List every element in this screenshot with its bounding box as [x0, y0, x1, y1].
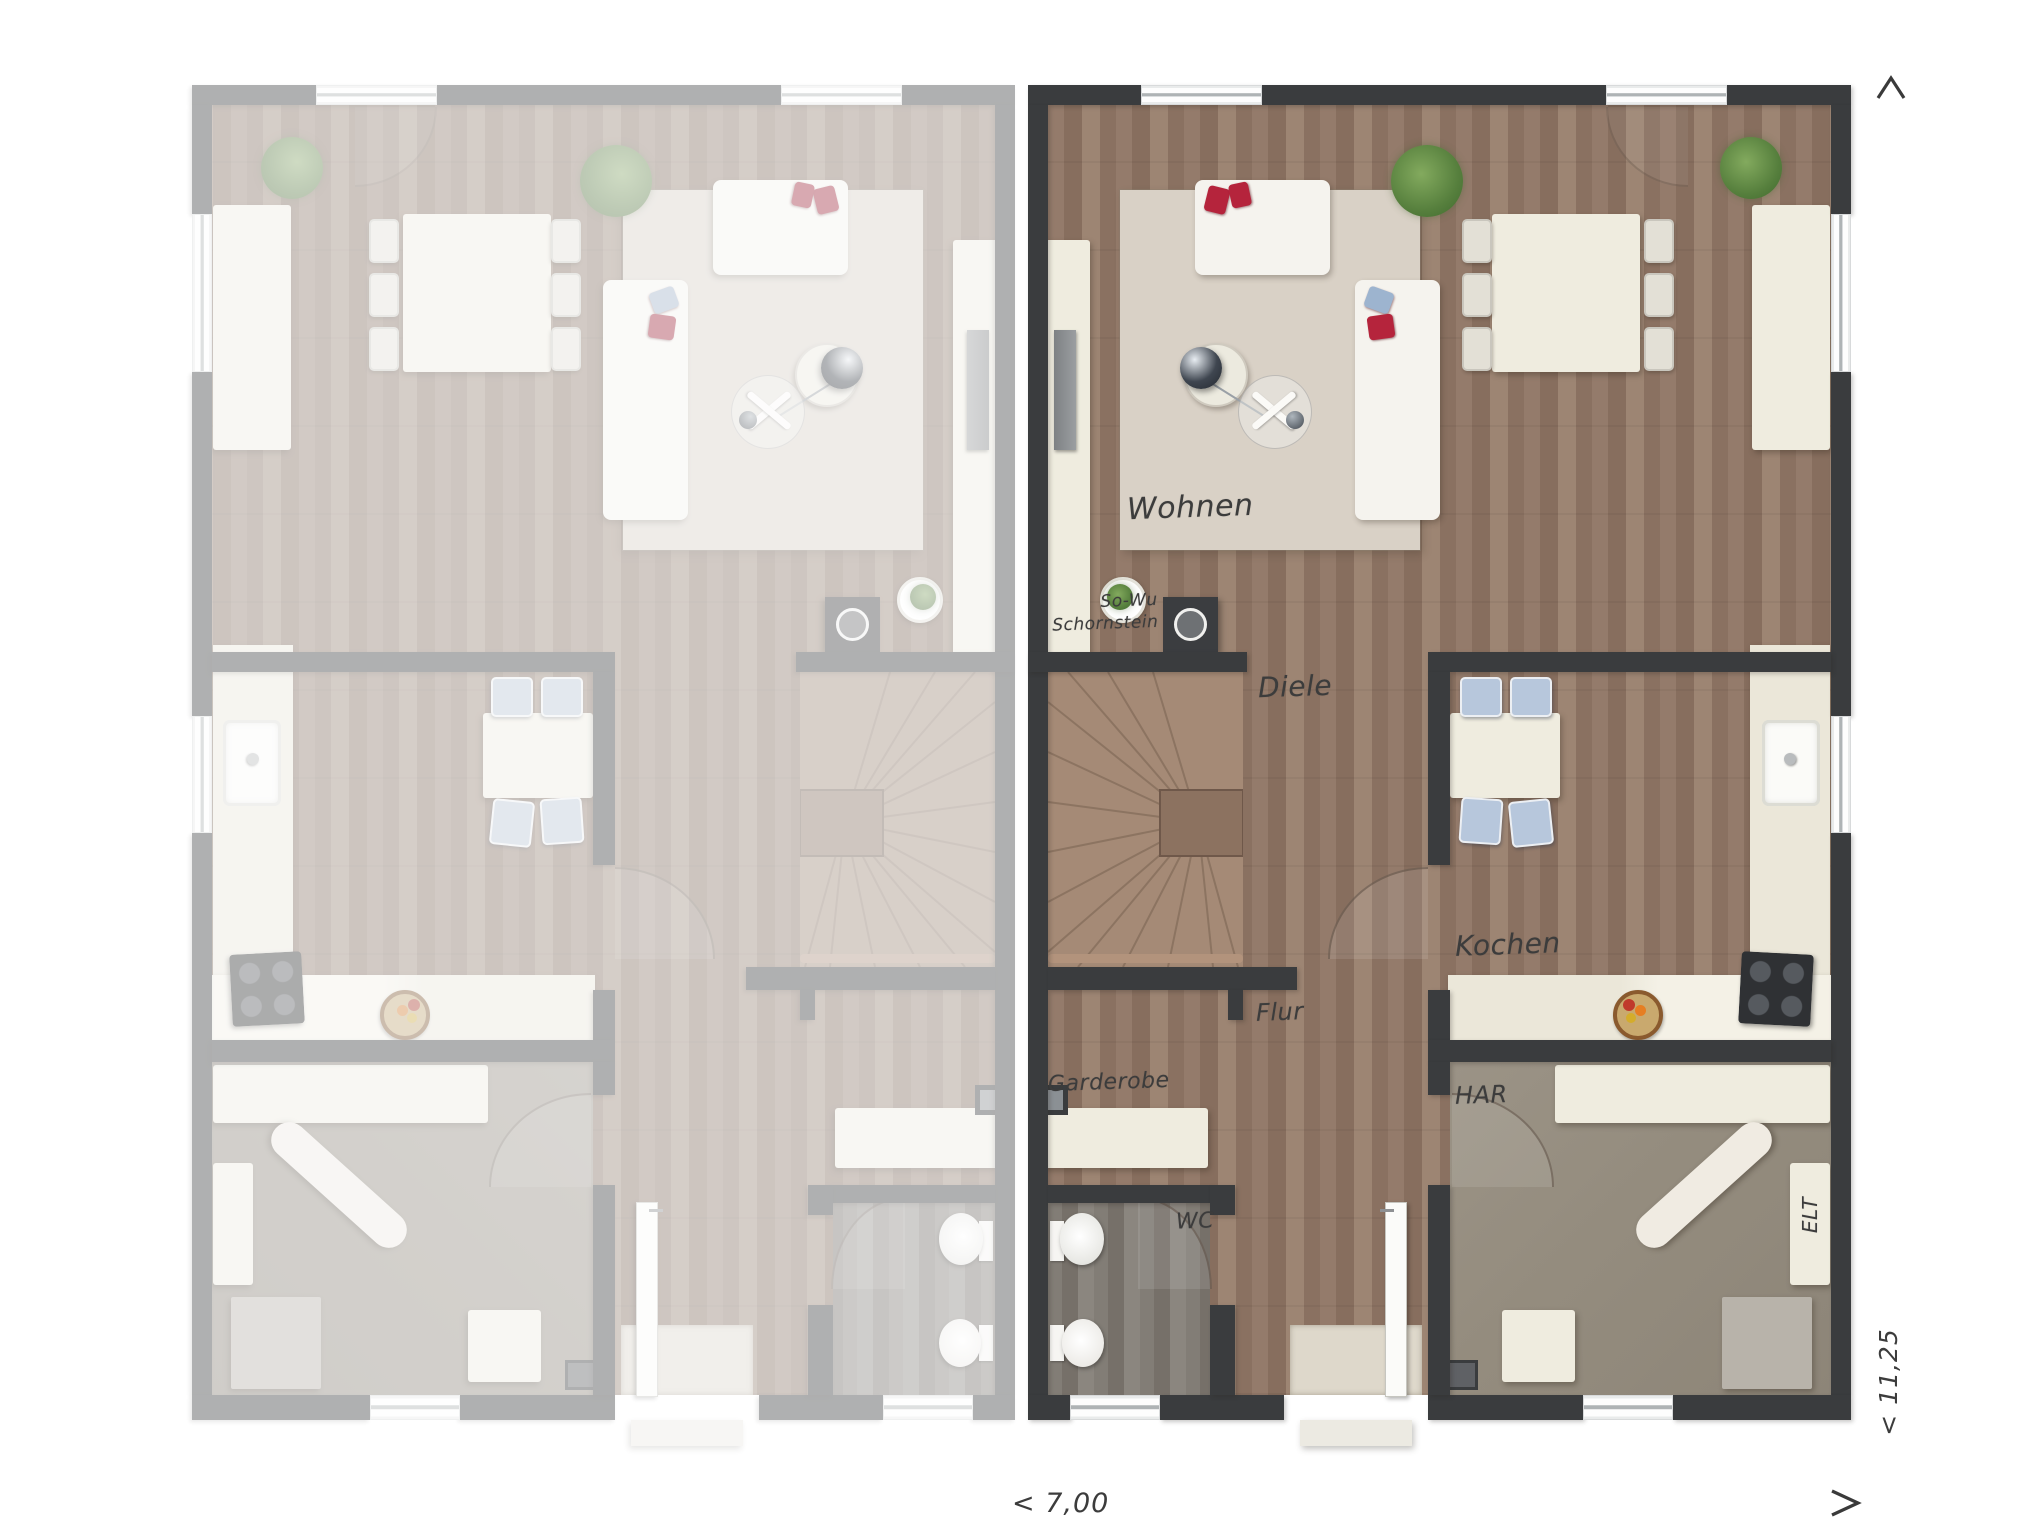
- dimension-width: < 7,00: [1012, 1488, 1109, 1519]
- chimney: [825, 597, 880, 652]
- wall-segment: [593, 672, 615, 865]
- left-house-unit: [192, 85, 1015, 1420]
- floor-lamp: [821, 347, 863, 389]
- wall-segment: [460, 1395, 615, 1420]
- wall-segment: [1831, 833, 1851, 1395]
- floor-lamp: [1180, 347, 1222, 389]
- wall-segment: [1428, 672, 1450, 865]
- wall-pillar: [1228, 990, 1243, 1020]
- toilet-tank: [979, 1325, 993, 1361]
- left-unit-mirrored-content: [192, 85, 1015, 1420]
- chair-blue: [489, 798, 536, 848]
- window: [316, 85, 437, 105]
- right-house-unit: Wohnen So-Wu Schornstein Diele Kochen Fl…: [1028, 85, 1851, 1420]
- stair-newel: [1160, 790, 1243, 856]
- dining-table: [1492, 214, 1640, 372]
- wall-segment: [1048, 967, 1297, 990]
- sink-faucet: [1784, 753, 1796, 765]
- plant: [580, 145, 652, 217]
- wall-segment: [212, 652, 615, 672]
- chair-blue: [1458, 797, 1503, 846]
- room-label-wohnen: Wohnen: [1126, 488, 1254, 527]
- wall-segment: [796, 652, 1015, 672]
- window: [192, 716, 212, 833]
- sideboard: [213, 205, 291, 450]
- entrance-door-leaf: [636, 1202, 658, 1397]
- door-handle: [649, 1209, 663, 1212]
- entrance-mat-outside: [1300, 1420, 1412, 1446]
- room-label-diele: Diele: [1257, 669, 1332, 705]
- room-label-har: HAR: [1455, 1080, 1509, 1110]
- stair-handrail: [1048, 954, 1243, 963]
- window: [192, 214, 212, 372]
- wall-segment: [1831, 105, 1851, 214]
- washing-machine: [1502, 1310, 1575, 1382]
- chair: [369, 327, 399, 371]
- chair: [1644, 273, 1674, 317]
- window: [1831, 716, 1851, 833]
- window: [1070, 1395, 1160, 1420]
- wall-segment: [1028, 652, 1247, 672]
- wall-segment: [192, 372, 212, 716]
- sink-faucet: [247, 753, 259, 765]
- chair-blue: [541, 677, 583, 717]
- chair: [1462, 273, 1492, 317]
- wall-segment: [1048, 1185, 1210, 1203]
- wall-segment: [593, 990, 615, 1040]
- wall-segment: [759, 1395, 883, 1420]
- decor-sphere: [739, 411, 757, 429]
- sofa-cushion: [1366, 313, 1395, 340]
- storage-box: [231, 1297, 321, 1389]
- kitchen-table: [1450, 713, 1560, 798]
- right-unit-content: Wohnen So-Wu Schornstein Diele Kochen Fl…: [1028, 85, 1851, 1420]
- room-label-garderobe: Garderobe: [1048, 1068, 1170, 1097]
- chair: [551, 327, 581, 371]
- wall-pillar: [800, 990, 815, 1020]
- entrance-mat-outside: [631, 1420, 743, 1446]
- wall-segment: [212, 1040, 615, 1062]
- stove-cooktop: [229, 951, 305, 1027]
- chair: [551, 219, 581, 263]
- wall-segment: [192, 105, 212, 214]
- wall-segment: [1428, 1062, 1450, 1095]
- fruit: [408, 999, 420, 1011]
- wall-segment: [1160, 1395, 1284, 1420]
- window: [1141, 85, 1262, 105]
- dining-table: [403, 214, 551, 372]
- chair-blue: [1510, 677, 1552, 717]
- wall-segment: [808, 1185, 833, 1215]
- room-label-elt: ELT: [1798, 1185, 1822, 1245]
- wall-segment: [1028, 1395, 1070, 1420]
- wall-segment: [192, 833, 212, 1395]
- sofa: [603, 280, 688, 520]
- stair-handrail: [800, 954, 995, 963]
- toilet-bowl: [1062, 1319, 1104, 1367]
- wall-segment: [593, 1062, 615, 1095]
- wall-segment: [995, 105, 1015, 1395]
- wall-segment: [808, 1305, 833, 1395]
- chevron-up-icon: [1872, 70, 1912, 106]
- window: [1831, 214, 1851, 372]
- dimension-depth: < 11,25: [1874, 1302, 1902, 1462]
- toilet-bowl: [939, 1319, 981, 1367]
- winding-stair: [800, 672, 995, 967]
- wc-sink-bowl: [939, 1213, 983, 1265]
- chair: [1462, 327, 1492, 371]
- sofa-cushion: [647, 313, 676, 340]
- wall-segment: [1428, 1040, 1831, 1062]
- wardrobe: [1043, 1108, 1208, 1168]
- wall-segment: [833, 1185, 995, 1203]
- decor-sphere: [1286, 411, 1304, 429]
- room-label-kochen: Kochen: [1454, 926, 1561, 963]
- chair-blue: [539, 797, 584, 846]
- fruit: [1623, 999, 1635, 1011]
- door-handle: [1380, 1209, 1394, 1212]
- room-label-schornstein: So-Wu Schornstein: [1035, 589, 1158, 637]
- wall-segment: [1673, 1395, 1851, 1420]
- plant: [1720, 137, 1782, 199]
- chair-blue: [1508, 798, 1555, 848]
- tv-panel: [1054, 330, 1076, 450]
- fruit: [1635, 1005, 1646, 1016]
- wall-segment: [1028, 105, 1048, 1395]
- wall-segment: [1428, 1395, 1583, 1420]
- floor-drain: [1448, 1363, 1475, 1387]
- washing-machine: [468, 1310, 541, 1382]
- floor-drain: [568, 1363, 595, 1387]
- stair-area: [1048, 672, 1243, 967]
- floor-plan-canvas: Wohnen So-Wu Schornstein Diele Kochen Fl…: [0, 0, 2034, 1526]
- chair: [1644, 327, 1674, 371]
- har-shelf: [213, 1065, 488, 1123]
- schornstein-line2: Schornstein: [1052, 612, 1159, 636]
- window: [883, 1395, 973, 1420]
- window: [370, 1395, 460, 1420]
- wall-segment: [1428, 652, 1831, 672]
- schornstein-line1: So-Wu: [1100, 590, 1158, 612]
- fruit: [407, 1013, 417, 1023]
- fruit: [397, 1005, 408, 1016]
- sideboard: [1752, 205, 1830, 450]
- wall-segment: [1428, 990, 1450, 1040]
- chair: [551, 273, 581, 317]
- wall-segment: [973, 1395, 1015, 1420]
- elt-cabinet: [213, 1163, 253, 1285]
- wall-segment: [593, 1185, 615, 1395]
- storage-box: [1722, 1297, 1812, 1389]
- room-label-wc: WC: [1176, 1208, 1215, 1234]
- winding-stair: [1048, 672, 1243, 967]
- entrance-door-leaf: [1385, 1202, 1407, 1397]
- wall-segment: [1210, 1305, 1235, 1395]
- chair: [1644, 219, 1674, 263]
- chair-blue: [1460, 677, 1502, 717]
- stair-newel: [800, 790, 883, 856]
- window: [1583, 1395, 1673, 1420]
- chevron-right-icon: [1824, 1486, 1868, 1522]
- wardrobe: [835, 1108, 1000, 1168]
- window: [1606, 85, 1727, 105]
- plant: [261, 137, 323, 199]
- wall-segment: [192, 1395, 370, 1420]
- kitchen-table: [483, 713, 593, 798]
- chair: [369, 219, 399, 263]
- room-label-flur: Flur: [1256, 997, 1305, 1027]
- chair: [1462, 219, 1492, 263]
- har-shelf: [1555, 1065, 1830, 1123]
- wc-sink-bowl: [1060, 1213, 1104, 1265]
- potted-plant-leaves: [910, 584, 936, 610]
- stove-cooktop: [1738, 951, 1814, 1027]
- fruit: [1626, 1013, 1636, 1023]
- wall-segment: [1428, 1185, 1450, 1395]
- chair-blue: [491, 677, 533, 717]
- wall-segment: [746, 967, 995, 990]
- wall-segment: [1831, 372, 1851, 716]
- stair-area: [800, 672, 995, 967]
- plant: [1391, 145, 1463, 217]
- chair: [369, 273, 399, 317]
- tv-panel: [967, 330, 989, 450]
- window: [781, 85, 902, 105]
- chimney: [1163, 597, 1218, 652]
